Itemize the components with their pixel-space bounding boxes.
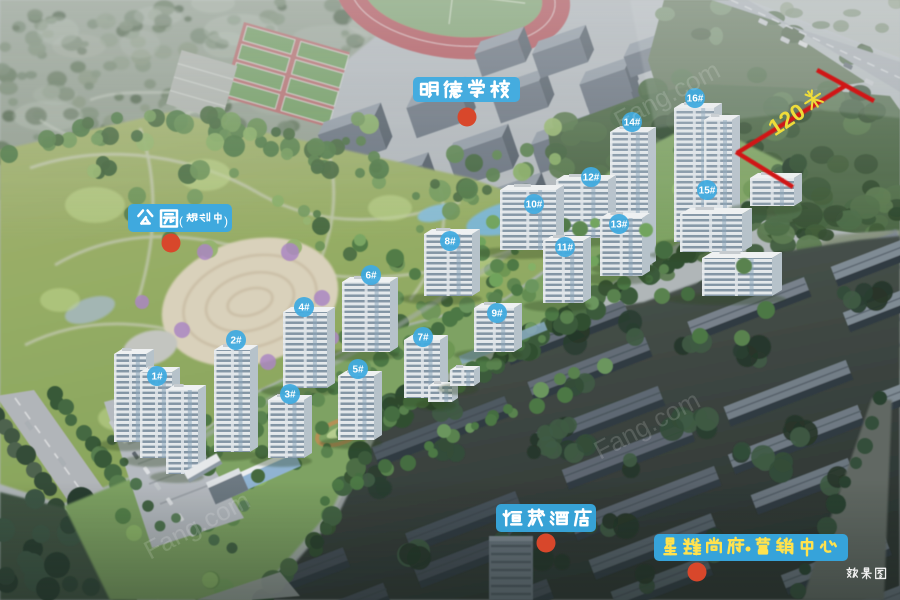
svg-text:7#: 7# xyxy=(417,333,429,344)
svg-text:5#: 5# xyxy=(352,365,364,376)
svg-text:8#: 8# xyxy=(444,237,456,248)
svg-text:1#: 1# xyxy=(151,372,163,383)
svg-text:4#: 4# xyxy=(298,303,310,314)
svg-text:11#: 11# xyxy=(557,243,574,254)
svg-text:9#: 9# xyxy=(491,309,503,320)
svg-text:3#: 3# xyxy=(284,390,296,401)
svg-text:(: ( xyxy=(179,214,183,228)
svg-text:10#: 10# xyxy=(526,200,543,211)
svg-text:): ) xyxy=(224,214,228,228)
svg-text:6#: 6# xyxy=(365,271,377,282)
svg-text:13#: 13# xyxy=(611,220,628,231)
svg-text:2#: 2# xyxy=(230,336,242,347)
svg-text:15#: 15# xyxy=(699,186,716,197)
svg-text:12#: 12# xyxy=(583,173,600,184)
